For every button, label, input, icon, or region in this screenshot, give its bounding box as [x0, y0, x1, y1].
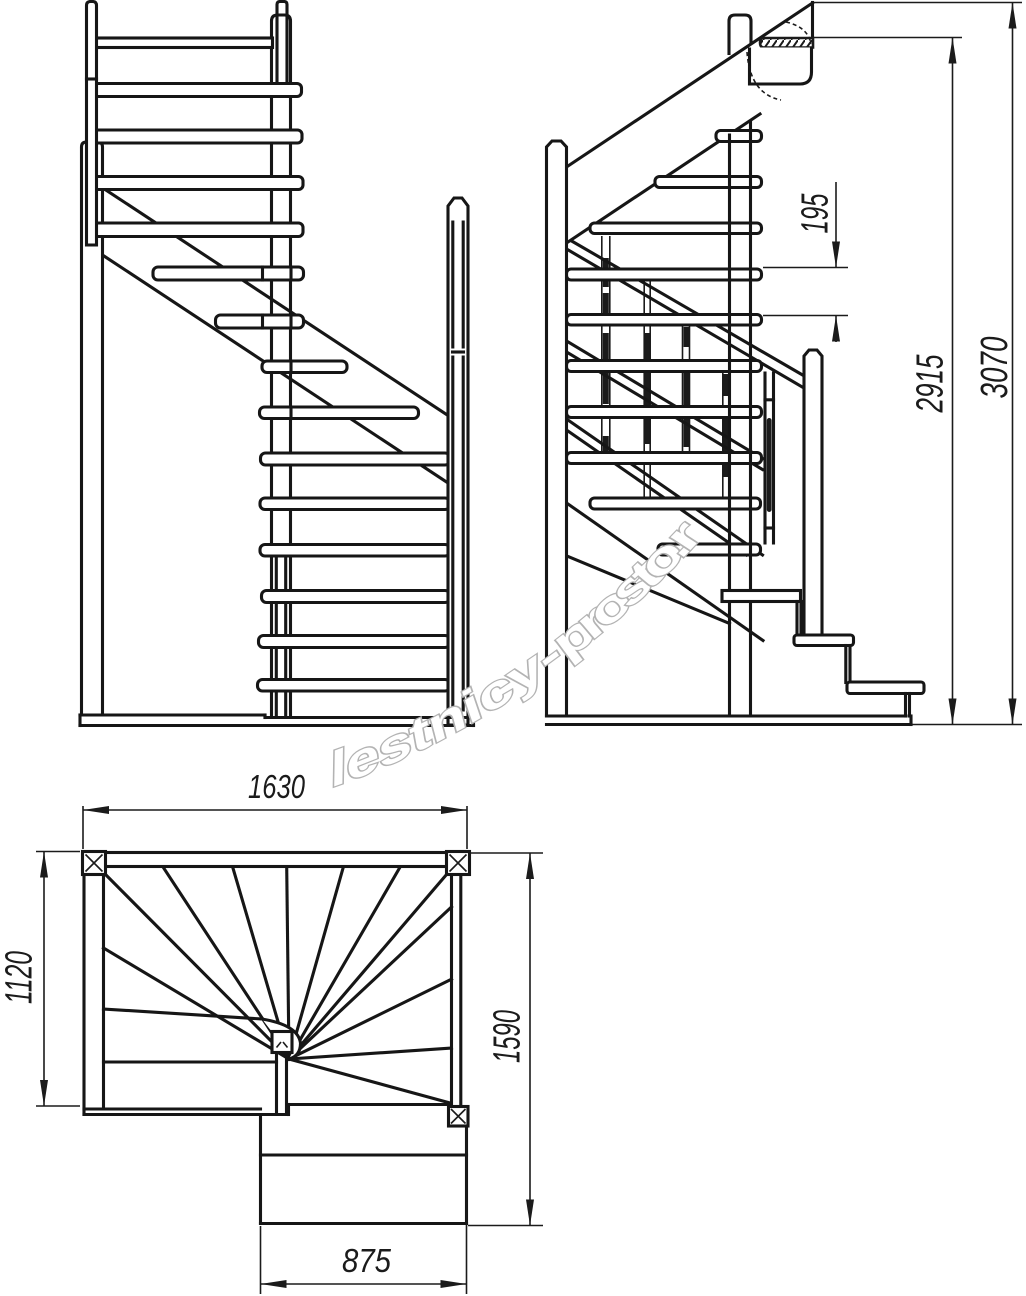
svg-text:1590: 1590: [487, 1010, 529, 1063]
svg-text:195: 195: [795, 193, 837, 234]
svg-text:3070: 3070: [974, 337, 1016, 399]
svg-text:1120: 1120: [0, 951, 41, 1004]
svg-text:2915: 2915: [910, 354, 952, 413]
svg-text:1630: 1630: [248, 768, 305, 805]
svg-text:875: 875: [342, 1242, 392, 1279]
